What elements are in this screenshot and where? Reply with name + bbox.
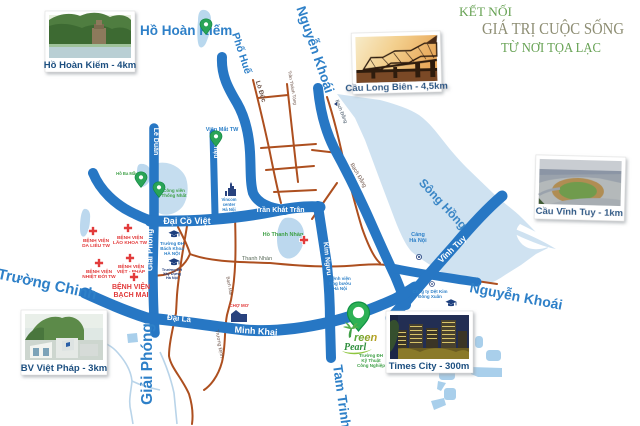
svg-text:GIÁ TRỊ CUỘC SỐNG: GIÁ TRỊ CUỘC SỐNG [482, 19, 624, 38]
svg-text:Công Nghiệp: Công Nghiệp [357, 363, 385, 368]
svg-text:Hồ Hoàn Kiếm - 4km: Hồ Hoàn Kiếm - 4km [44, 60, 136, 71]
svg-text:CHỢ MƠ: CHỢ MƠ [229, 303, 248, 308]
svg-text:Pearl: Pearl [344, 342, 366, 353]
svg-text:Hà Nội: Hà Nội [409, 238, 427, 244]
svg-text:LÃO KHOA TW: LÃO KHOA TW [113, 239, 148, 246]
svg-text:Hồ Hoàn Kiếm: Hồ Hoàn Kiếm [140, 23, 232, 38]
svg-text:Hà Nội: Hà Nội [333, 286, 347, 291]
svg-text:Giải Phóng: Giải Phóng [139, 323, 156, 405]
svg-text:Đông Xuân: Đông Xuân [418, 294, 442, 299]
svg-text:Hồ Thanh Nhàn: Hồ Thanh Nhàn [263, 232, 304, 238]
svg-text:Hồ Ba Mẫu: Hồ Ba Mẫu [116, 171, 138, 176]
svg-text:BẠCH MAI: BẠCH MAI [114, 292, 149, 299]
svg-text:BV Việt Pháp - 3km: BV Việt Pháp - 3km [21, 363, 107, 374]
svg-text:Giải Phóng: Giải Phóng [146, 229, 155, 271]
svg-text:Hà Nội: Hà Nội [166, 276, 178, 280]
svg-text:Thanh Nhàn: Thanh Nhàn [242, 256, 272, 262]
svg-text:BỆNH VIỆN: BỆNH VIỆN [112, 282, 150, 291]
svg-text:Lê Duẩn: Lê Duẩn [152, 128, 160, 156]
svg-text:HÀ NỘI: HÀ NỘI [164, 249, 180, 256]
svg-text:Thống Nhất: Thống Nhất [162, 192, 187, 198]
svg-text:Trần Khát Trân: Trần Khát Trân [255, 205, 304, 214]
svg-text:Times City - 300m: Times City - 300m [389, 361, 470, 372]
svg-text:Viện Mắt TW: Viện Mắt TW [206, 126, 239, 133]
svg-text:Đại Cồ Việt: Đại Cồ Việt [163, 216, 210, 226]
svg-text:KẾT NỐI: KẾT NỐI [459, 4, 512, 19]
svg-text:DA LIỄU TW: DA LIỄU TW [82, 242, 110, 249]
svg-text:Cầu Vĩnh Tuy - 1km: Cầu Vĩnh Tuy - 1km [536, 206, 624, 219]
svg-text:Hà Nội: Hà Nội [222, 207, 235, 212]
svg-text:TỪ NƠI TỌA LẠC: TỪ NƠI TỌA LẠC [501, 40, 601, 55]
